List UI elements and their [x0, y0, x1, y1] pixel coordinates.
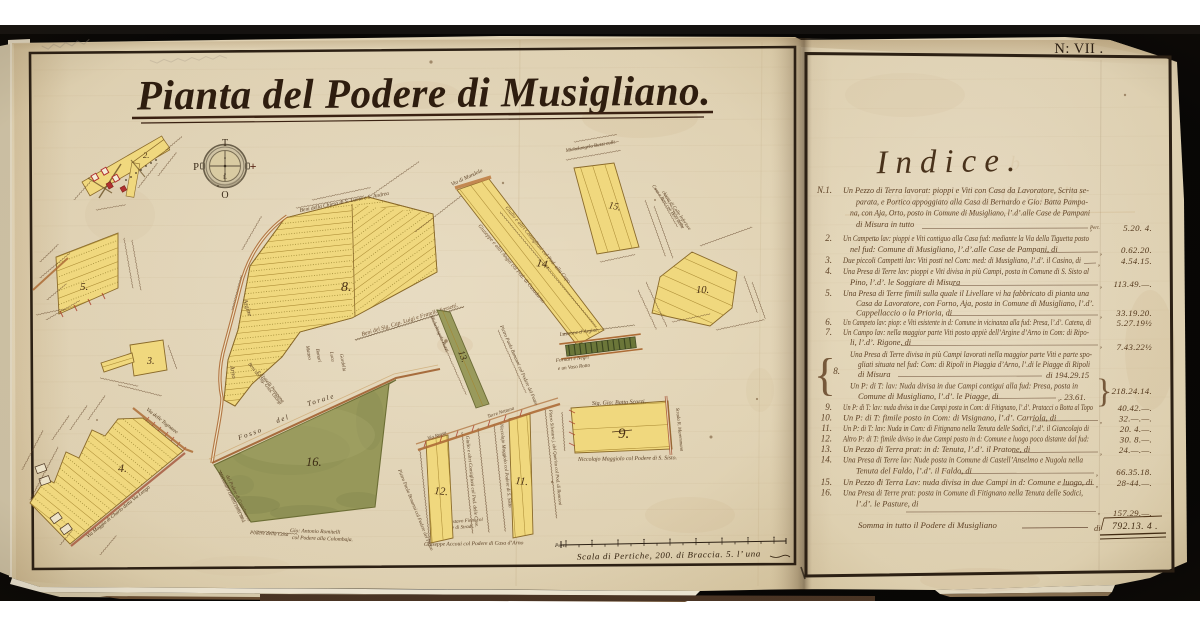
svg-text:2.: 2. — [825, 233, 832, 243]
svg-text:5.20. 4.: 5.20. 4. — [1123, 223, 1152, 233]
svg-text:3.: 3. — [146, 356, 155, 367]
svg-text:5.: 5. — [80, 281, 88, 293]
svg-text:16.: 16. — [306, 455, 322, 469]
svg-text:4.: 4. — [118, 461, 127, 475]
svg-text:Somma in tutto il Podere di Mu: Somma in tutto il Podere di Musigliano — [858, 520, 998, 530]
svg-text:10.: 10. — [821, 413, 832, 423]
svg-text:15.: 15. — [821, 477, 832, 487]
svg-text:+: + — [250, 159, 257, 173]
svg-text:Un Pezzo di Terra prat: in d:: Un Pezzo di Terra prat: in d: Tenuta, l’… — [843, 445, 1031, 454]
svg-text:20. 4.—.: 20. 4.—. — [1120, 424, 1152, 434]
svg-text:N: VII .: N: VII . — [1054, 41, 1103, 57]
svg-text:4.54.15.: 4.54.15. — [1121, 256, 1152, 266]
svg-text:na, con Aja, Orto, posto in Co: na, con Aja, Orto, posto in Comune di Mu… — [850, 209, 1091, 218]
svg-text:7.: 7. — [825, 327, 832, 337]
svg-text:,: , — [1100, 341, 1102, 350]
svg-text:nel fud: Comune di Musigliano,: nel fud: Comune di Musigliano, l’.d’.all… — [850, 245, 1058, 254]
svg-text:Una Presa di Terre lav: Nude p: Una Presa di Terre lav: Nude posta in Co… — [843, 456, 1083, 465]
svg-text:113.49.—.: 113.49.—. — [1114, 279, 1152, 289]
svg-text:di Misura in tutto: di Misura in tutto — [856, 220, 914, 229]
svg-text:,: , — [1100, 281, 1102, 290]
svg-text:Una Presa di Terre divisa in p: Una Presa di Terre divisa in più Campi l… — [850, 350, 1092, 359]
svg-text:Altro P: di T: fimile diviso i: Altro P: di T: fimile diviso in due Camp… — [842, 435, 1089, 444]
svg-text:}: } — [1096, 373, 1112, 410]
svg-text:7.43.22½: 7.43.22½ — [1117, 342, 1152, 352]
svg-text:l’.d’. le Pasture, di: l’.d’. le Pasture, di — [856, 500, 919, 509]
svg-text:4.: 4. — [825, 266, 832, 276]
svg-text:,: , — [1100, 448, 1102, 457]
svg-text:16.: 16. — [821, 488, 832, 498]
svg-text:. 23.61.: . 23.61. — [1060, 392, 1086, 402]
svg-text:Due piccoli Campetti lav: Viti: Due piccoli Campetti lav: Viti posti nel… — [842, 256, 1081, 265]
svg-text:12.: 12. — [821, 434, 832, 444]
svg-text:,: , — [1098, 259, 1100, 268]
svg-text:,: , — [1096, 469, 1098, 478]
svg-text:Un Campeto lav: piop: e Viti e: Un Campeto lav: piop: e Viti esistente i… — [843, 318, 1092, 327]
svg-text:Indice.: Indice. — [875, 143, 1023, 182]
svg-text:2.: 2. — [143, 150, 149, 160]
svg-text:di 194.29.15: di 194.29.15 — [1046, 370, 1090, 380]
svg-text:9.: 9. — [618, 426, 629, 442]
svg-text:Una Presa di Terre fimili sull: Una Presa di Terre fimili sulla quale il… — [843, 289, 1089, 298]
svg-text:Comune di Musigliano, l’.d’. l: Comune di Musigliano, l’.d’. le Piagge, … — [858, 392, 999, 401]
svg-text:Pino, l’.d’. le Soggiare di Mi: Pino, l’.d’. le Soggiare di Misura — [849, 278, 960, 287]
svg-text:Tenuta del Faldo, l’.d’. il Fa: Tenuta del Faldo, l’.d’. il Faldo, di — [856, 467, 973, 476]
svg-text:13.: 13. — [821, 444, 832, 454]
svg-text:3.: 3. — [824, 255, 832, 265]
svg-text:Pert.: Pert. — [554, 543, 566, 549]
svg-text:Un Pezzo di Terra lavorat: pio: Un Pezzo di Terra lavorat: pioppi e Viti… — [843, 186, 1089, 195]
svg-text:{: { — [814, 349, 836, 400]
svg-text:O: O — [221, 190, 228, 201]
svg-text:Un Campo lav: nella maggior pa: Un Campo lav: nella maggior parte Viti p… — [843, 328, 1089, 337]
svg-text:di Misura: di Misura — [858, 370, 891, 379]
svg-text:parata, e Portico appoggiato a: parata, e Portico appoggiato alla Casa d… — [855, 198, 1088, 207]
svg-text:30. 8.—.: 30. 8.—. — [1119, 435, 1152, 445]
svg-text:40.42.—.: 40.42.—. — [1118, 403, 1152, 413]
svg-text:Un P: di T: lav: Nuda divisa i: Un P: di T: lav: Nuda divisa in due Camp… — [850, 382, 1078, 391]
svg-text:66.35.18.: 66.35.18. — [1116, 467, 1152, 477]
svg-text:,: , — [1096, 480, 1098, 489]
svg-text:6.: 6. — [825, 317, 832, 327]
svg-text:792.13. 4 .: 792.13. 4 . — [1112, 522, 1158, 532]
svg-text:0.62.20.: 0.62.20. — [1121, 245, 1152, 255]
svg-text:Un Campetto lav: pioppi e Viti: Un Campetto lav: pioppi e Viti contiguo … — [843, 234, 1089, 243]
svg-text:218.24.14.: 218.24.14. — [1112, 386, 1152, 396]
svg-text:12.: 12. — [434, 485, 449, 498]
svg-text:Casa da Lavoratore, con Forno,: Casa da Lavoratore, con Forno, Aja, post… — [856, 299, 1094, 308]
svg-text:9.: 9. — [825, 402, 832, 412]
svg-text:di: di — [1094, 523, 1101, 533]
svg-text:11.: 11. — [821, 423, 832, 433]
svg-text:24.—.—.: 24.—.—. — [1119, 445, 1152, 455]
svg-text:10.: 10. — [696, 285, 709, 296]
svg-text:Un P: di T: lav: nuda divisa i: Un P: di T: lav: nuda divisa in due Camp… — [843, 403, 1093, 412]
svg-text:8.: 8. — [341, 280, 352, 295]
svg-text:14.: 14. — [821, 455, 832, 465]
svg-text:,: , — [1098, 507, 1100, 516]
svg-text:Un Pezzo di Terra Lav: nuda di: Un Pezzo di Terra Lav: nuda divisa in du… — [843, 478, 1093, 487]
svg-text:T: T — [222, 138, 228, 149]
svg-text:Una Presa di Terre lav: pioppi: Una Presa di Terre lav: pioppi e Viti di… — [843, 267, 1090, 276]
svg-text:33.19.20.: 33.19.20. — [1115, 308, 1152, 318]
svg-text:Una Presa di Terre prat: posta: Una Presa di Terre prat: posta in Comune… — [843, 489, 1083, 498]
svg-text:Un P: di T: lav: Nuda in Com:: Un P: di T: lav: Nuda in Com: di Fitigna… — [843, 424, 1090, 433]
svg-text:5.27.19½: 5.27.19½ — [1117, 318, 1152, 328]
svg-text:Un P: di T: fimile posto in Co: Un P: di T: fimile posto in Com: di Visi… — [843, 414, 1057, 423]
svg-text:P: P — [193, 162, 199, 173]
svg-text:11.: 11. — [515, 475, 529, 488]
svg-text:28-44.—.: 28-44.—. — [1117, 478, 1152, 488]
svg-text:5.: 5. — [825, 288, 832, 298]
svg-text:Pert.: Pert. — [1089, 226, 1100, 231]
svg-text:N.1.: N.1. — [816, 185, 832, 195]
svg-text:Cappellaccio o la Prioria, di: Cappellaccio o la Prioria, di — [856, 309, 953, 318]
svg-text:,: , — [1100, 416, 1102, 425]
svg-text:32.—.—.: 32.—.—. — [1118, 414, 1152, 424]
svg-text:L: L — [223, 175, 227, 181]
svg-text:,: , — [1100, 248, 1102, 257]
svg-text:gliati situata nel fud: Com: d: gliati situata nel fud: Com: di Ripoli i… — [858, 360, 1091, 369]
svg-text:,: , — [1100, 311, 1102, 320]
